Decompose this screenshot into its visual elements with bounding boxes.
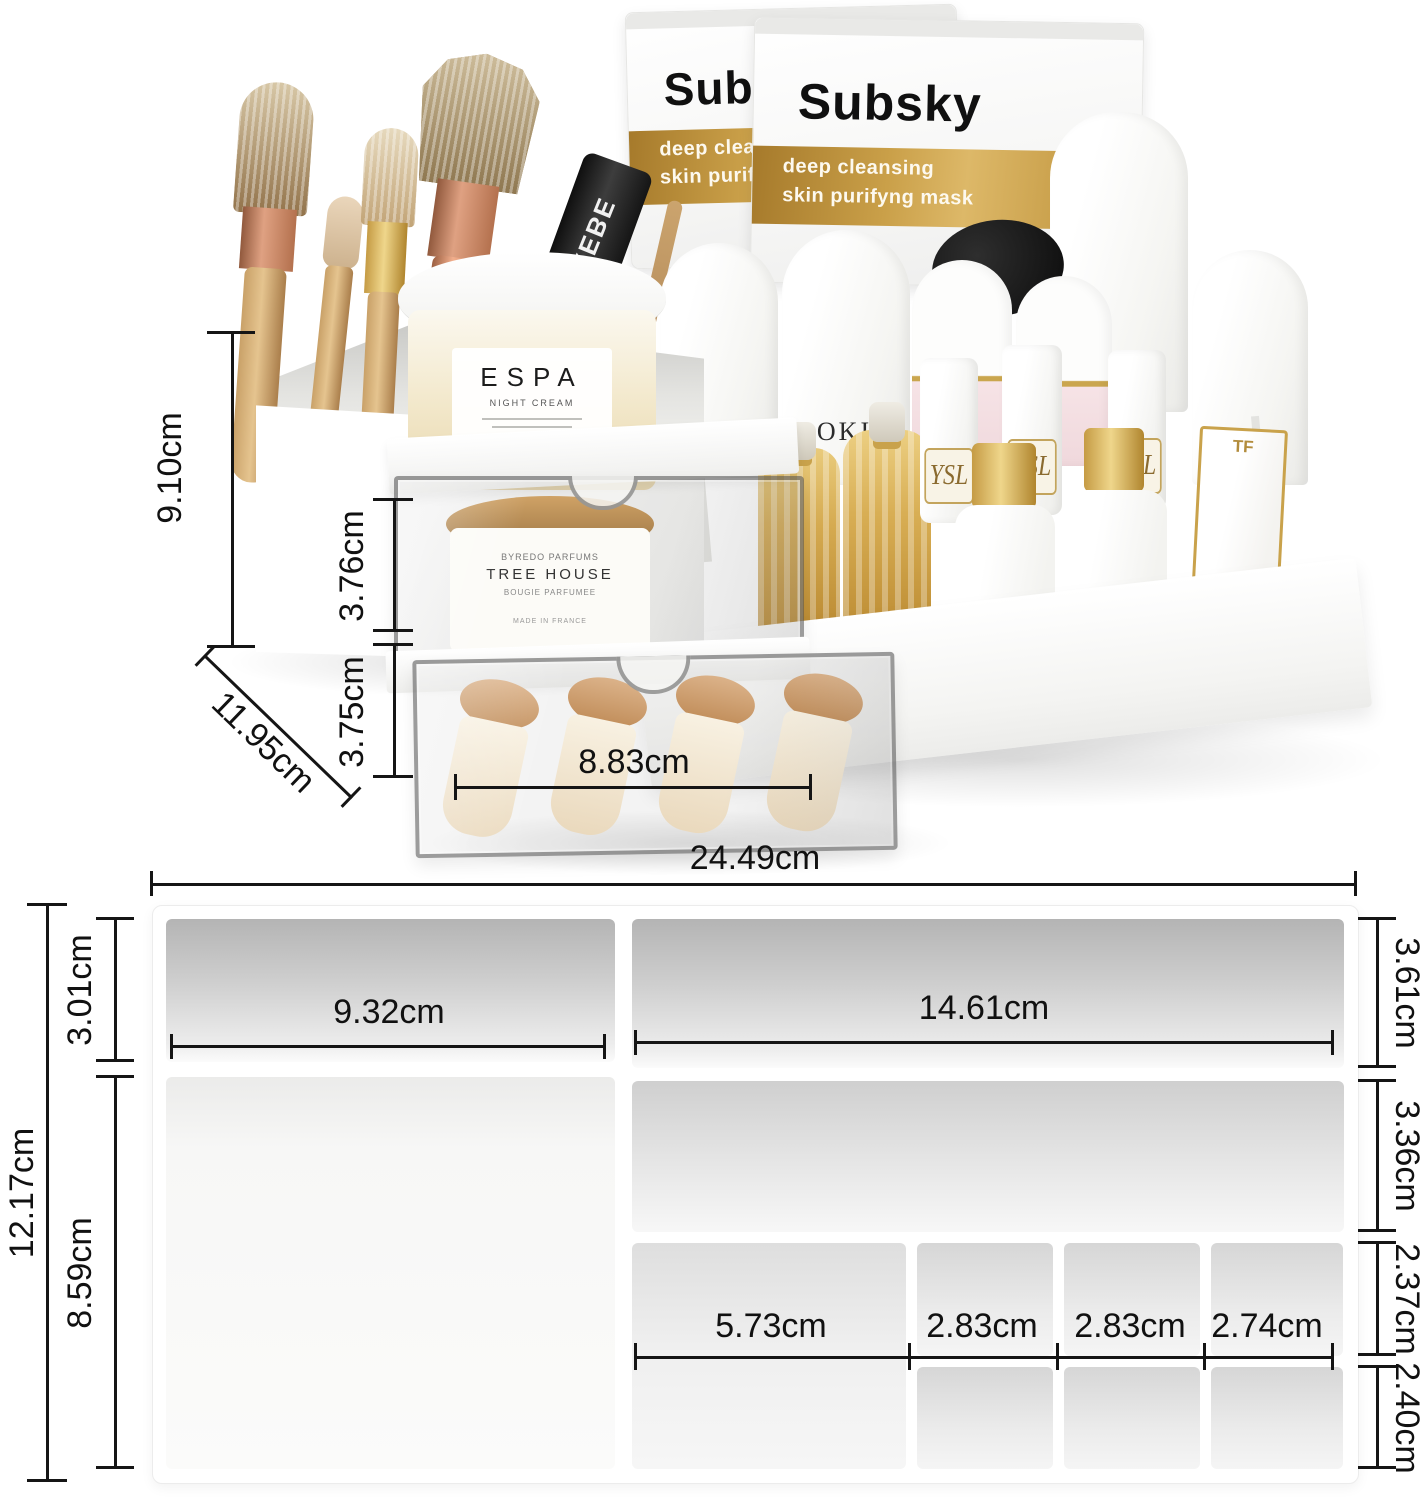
dimension-value: 2.74cm <box>1167 1306 1367 1346</box>
dimension-value: 9.10cm <box>150 368 190 568</box>
dimension-value: 8.59cm <box>60 1183 100 1363</box>
compartment-right-middle <box>632 1081 1344 1232</box>
dimension-value: 3.61cm <box>1387 903 1423 1083</box>
dimension-tick <box>1056 1343 1059 1370</box>
dimension-tick <box>908 1343 911 1370</box>
dimension-tick <box>1354 871 1357 896</box>
mask-tagline-1: deep cleansing <box>783 155 935 181</box>
dimension-value: 3.01cm <box>60 900 100 1080</box>
dimension-tick <box>373 498 413 501</box>
tree-house-jar: BYREDO PARFUMS TREE HOUSE BOUGIE PARFUME… <box>450 528 650 652</box>
dimension-line <box>393 645 396 778</box>
packet-seal <box>755 18 1143 41</box>
dimension-line <box>1376 1243 1379 1356</box>
dimension-line <box>46 905 49 1482</box>
cosmetic-roll <box>756 667 867 838</box>
acrylic-drawer-1: BYREDO PARFUMS TREE HOUSE BOUGIE PARFUME… <box>394 476 804 664</box>
dimension-value: 12.17cm <box>2 1103 42 1283</box>
dimension-tick <box>373 643 413 646</box>
dimension-tick <box>170 1034 173 1059</box>
dimension-tick <box>634 1030 637 1055</box>
dimension-tick <box>373 775 413 778</box>
dimension-tick <box>454 774 457 800</box>
roll-body <box>437 714 530 842</box>
babor-gold-cap <box>1084 428 1144 492</box>
tree-house-maker-text: BYREDO PARFUMS <box>450 552 650 562</box>
dimension-tick <box>373 629 413 632</box>
dimension-tick <box>1203 1343 1206 1370</box>
dimension-value: 2.40cm <box>1387 1328 1423 1500</box>
espa-jar-label: ESPA NIGHT CREAM <box>452 348 612 440</box>
tf-lipstick: TF <box>1192 426 1288 586</box>
dimension-tick <box>1331 1343 1334 1370</box>
dimension-line <box>172 1045 606 1048</box>
tf-brand-text: TF <box>1202 435 1285 459</box>
brush-ferrule <box>239 206 297 272</box>
dimension-tick <box>96 1059 134 1062</box>
dimension-tick <box>27 1479 67 1482</box>
ysl-lipstick: YSL <box>920 358 978 523</box>
dimension-line <box>114 919 117 1062</box>
compartment-slot4-bottom <box>1211 1367 1343 1469</box>
dimension-tick <box>96 1466 134 1469</box>
tree-house-type-text: BOUGIE PARFUMEE <box>450 588 650 597</box>
dimension-line <box>1376 919 1379 1068</box>
dimension-line <box>393 500 396 632</box>
brush-bristles <box>410 46 546 196</box>
mask-tagline-2: skin purifyng mask <box>782 184 974 210</box>
dimension-value: 5.73cm <box>671 1306 871 1346</box>
compartment-slot2-bottom <box>917 1367 1053 1469</box>
dimension-tick <box>207 331 255 334</box>
dimension-tick <box>96 1075 134 1078</box>
dimension-value: 24.49cm <box>605 838 905 878</box>
product-dimension-image: Subsky deep cleansing skin purifyng mask… <box>0 0 1423 1500</box>
dimension-tick <box>150 871 153 896</box>
dimension-value: 8.83cm <box>534 742 734 782</box>
brush-bristles <box>233 80 316 217</box>
dimension-tick <box>809 774 812 800</box>
dimension-line <box>152 883 1357 886</box>
roll-body <box>761 709 854 837</box>
compartment-slot3-bottom <box>1064 1367 1200 1469</box>
espa-subtitle-text: NIGHT CREAM <box>452 398 612 408</box>
dimension-line <box>114 1077 117 1469</box>
compartment-top-left <box>166 919 615 1062</box>
dimension-line <box>456 786 812 789</box>
tree-house-origin-text: MADE IN FRANCE <box>450 618 650 625</box>
mask-brand-text: Subsky <box>797 72 982 133</box>
dimension-tick <box>1331 1030 1334 1055</box>
dimension-tick <box>96 917 134 920</box>
dimension-value: 9.32cm <box>239 992 539 1032</box>
dimension-line <box>231 333 234 648</box>
dimension-line <box>636 1356 1334 1359</box>
babor-gold-cap <box>972 443 1036 509</box>
cosmetic-roll <box>432 672 543 843</box>
espa-brand-text: ESPA <box>452 362 612 393</box>
dimension-line <box>636 1041 1334 1044</box>
tree-house-name-text: TREE HOUSE <box>450 566 650 583</box>
perfume-stopper <box>869 402 905 442</box>
espa-fineprint-line <box>492 426 572 428</box>
dimension-tick <box>603 1034 606 1059</box>
dimension-line <box>1376 1081 1379 1232</box>
dimension-value: 14.61cm <box>834 988 1134 1028</box>
compartment-left-large <box>166 1077 615 1469</box>
dimension-tick <box>634 1343 637 1370</box>
espa-fineprint-line <box>482 418 582 420</box>
ysl-monogram-icon: YSL <box>924 448 973 504</box>
dimension-line <box>1376 1367 1379 1469</box>
